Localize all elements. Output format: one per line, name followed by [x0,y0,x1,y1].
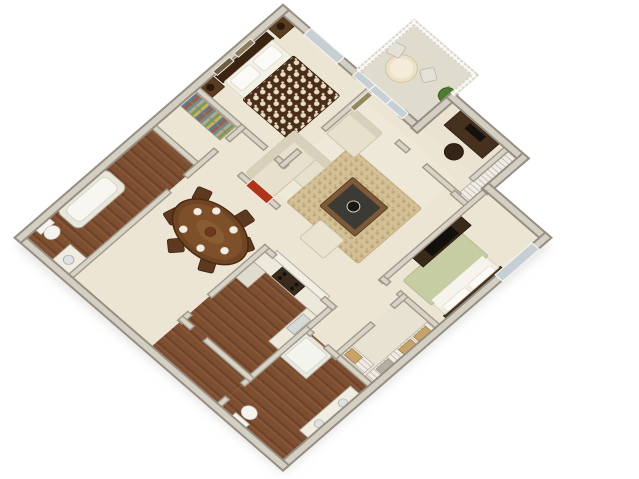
wall-cap [383,279,386,282]
patio-chair [419,67,437,83]
floor-plan-3d-render [0,0,639,479]
floor-plan-canvas [0,0,639,479]
